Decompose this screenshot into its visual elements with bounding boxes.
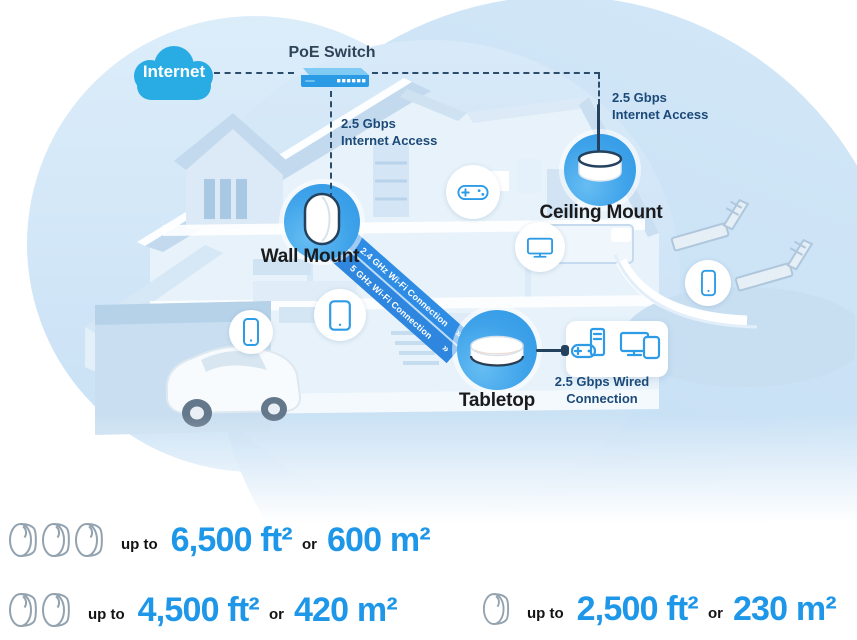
ceiling-mount-device-icon (574, 147, 626, 198)
cloud-to-switch-line (214, 72, 294, 74)
dormer (186, 121, 283, 229)
cable-connector (561, 345, 569, 356)
coverage-row-1-unit: up to 2,500 ft² or 230 m² (482, 587, 836, 631)
coverage-imperial: 2,500 ft² (577, 590, 698, 629)
poe-switch-icon (291, 62, 373, 90)
chevrons-right-icon: » (439, 343, 451, 355)
game-controller-icon (446, 165, 500, 219)
wall-drop-dashed-line (330, 91, 332, 199)
tabletop-device-icon (467, 326, 527, 377)
poe-switch-label: PoE Switch (281, 44, 383, 62)
or-text: or (708, 605, 723, 622)
smartphone-icon (685, 260, 731, 306)
unit-disc-icons (482, 587, 512, 631)
wall-internet-access-note: 2.5 Gbps Internet Access (341, 116, 437, 149)
unit-disc-icons (8, 587, 73, 633)
coverage-metric: 420 m² (294, 591, 397, 630)
switch-to-ceiling-line (372, 72, 600, 74)
or-text: or (302, 536, 317, 553)
wired-devices-icon (566, 321, 668, 377)
mesh-coverage-infographic: Internet PoE Switch « 2.4 GHz Wi-Fi C (0, 0, 857, 640)
up-to-text: up to (88, 606, 125, 623)
up-to-text: up to (527, 605, 564, 622)
smartphone-icon (229, 310, 273, 354)
tv-icon (515, 222, 565, 272)
coverage-metric: 230 m² (733, 590, 836, 629)
coverage-row-2-units: up to 4,500 ft² or 420 m² (8, 587, 397, 633)
ceiling-internet-access-note: 2.5 Gbps Internet Access (612, 90, 708, 123)
wired-devices-card (566, 321, 668, 377)
internet-label: Internet (124, 62, 224, 82)
wall-mount-label: Wall Mount (248, 246, 372, 268)
up-to-text: up to (121, 536, 158, 553)
wired-connection-note: 2.5 Gbps Wired Connection (538, 374, 666, 407)
coverage-row-3-units: up to 6,500 ft² or 600 m² (8, 517, 430, 563)
unit-disc-icons (8, 517, 106, 563)
wall-mount-device-icon (300, 190, 344, 253)
coverage-imperial: 6,500 ft² (171, 521, 292, 560)
ceiling-mount-label: Ceiling Mount (533, 202, 669, 224)
ceiling-drop-dashed-line (598, 73, 600, 105)
ceiling-drop-cable (597, 104, 600, 152)
coverage-metric: 600 m² (327, 521, 430, 560)
coverage-imperial: 4,500 ft² (138, 591, 259, 630)
or-text: or (269, 606, 284, 623)
tablet-icon (314, 289, 366, 341)
